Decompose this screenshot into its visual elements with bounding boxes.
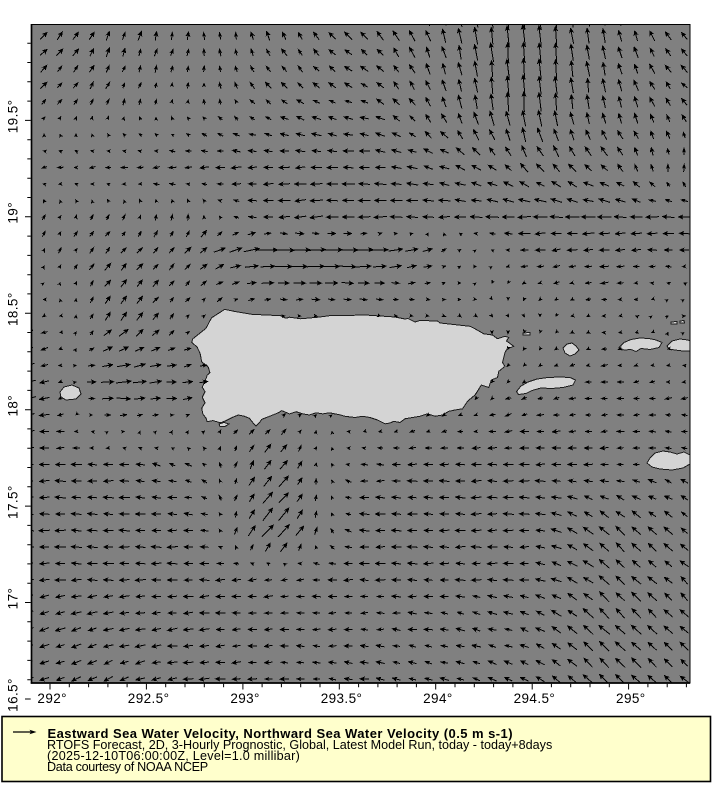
- svg-text:Data courtesy of NOAA NCEP: Data courtesy of NOAA NCEP: [47, 760, 208, 774]
- svg-text:293.5°: 293.5°: [321, 691, 363, 706]
- svg-text:292°: 292°: [37, 691, 67, 706]
- svg-text:292.5°: 292.5°: [128, 691, 170, 706]
- svg-text:294°: 294°: [423, 691, 453, 706]
- svg-text:294.5°: 294.5°: [514, 691, 556, 706]
- svg-text:19°: 19°: [6, 202, 21, 224]
- svg-text:16.5°: 16.5°: [6, 678, 21, 712]
- svg-text:17.5°: 17.5°: [6, 485, 21, 519]
- svg-text:18°: 18°: [6, 395, 21, 417]
- svg-text:18.5°: 18.5°: [6, 292, 21, 326]
- svg-text:295°: 295°: [616, 691, 646, 706]
- svg-text:17°: 17°: [6, 588, 21, 610]
- svg-text:293°: 293°: [230, 691, 260, 706]
- svg-text:19.5°: 19.5°: [6, 100, 21, 134]
